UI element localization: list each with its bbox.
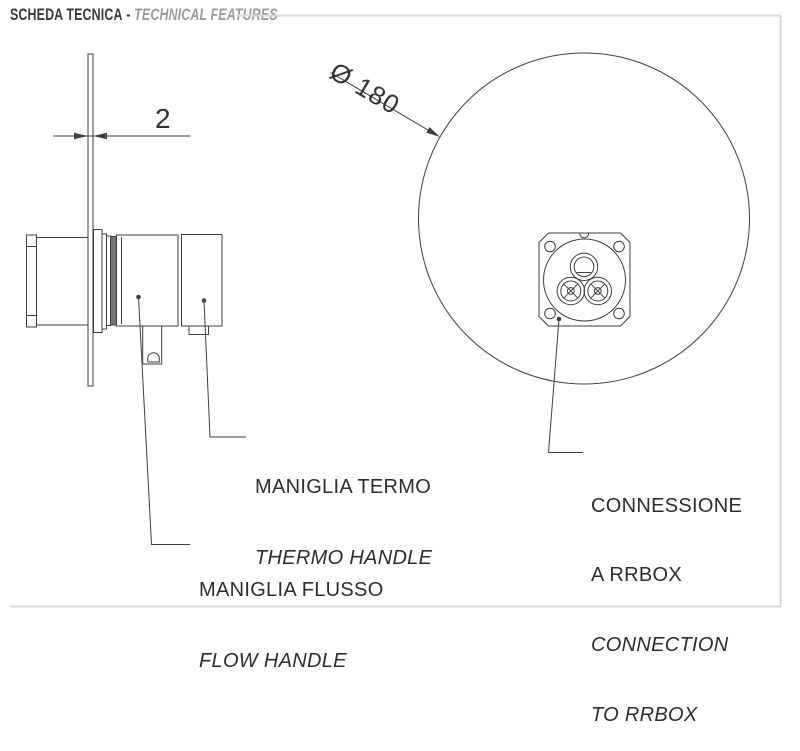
valve-body (37, 238, 89, 326)
rrbox-connection (539, 233, 630, 326)
corner-hole-top-left (545, 241, 556, 252)
thermo-handle-body (182, 235, 223, 327)
rrbox-label-it-line1: CONNESSIONE (591, 495, 742, 518)
dimension-arrow-left (74, 133, 88, 140)
leader-line (549, 319, 584, 453)
port-bottom-right (584, 277, 611, 304)
flow-lever-tip (148, 353, 160, 362)
port-bottom-left (557, 277, 584, 304)
leader-arrow (426, 127, 440, 137)
wall-plate (88, 54, 93, 386)
port-inner (574, 257, 594, 277)
port-top (570, 253, 597, 280)
plate-thickness-value: 2 (155, 103, 171, 135)
flow-handle-body (117, 235, 179, 326)
round-plate (419, 53, 750, 384)
rrbox-plate (539, 233, 630, 326)
side-view (27, 54, 247, 545)
gasket-ring (111, 237, 117, 326)
callout-flow-handle: MANIGLIA FLUSSO FLOW HANDLE (199, 532, 384, 697)
dimension-arrow-right (93, 133, 107, 140)
corner-hole-bottom-right (614, 308, 625, 319)
top-notch (580, 234, 589, 238)
flow-handle-label-en: FLOW HANDLE (199, 650, 384, 674)
flow-handle-label-it: MANIGLIA FLUSSO (199, 579, 384, 603)
leader-line (139, 297, 191, 545)
rrbox-label-en-line2: TO RRBOX (591, 704, 742, 727)
escutcheon-flange (94, 230, 103, 333)
inlet-cap (27, 235, 37, 327)
rrbox-leader (549, 317, 584, 453)
thermo-handle-leader (202, 298, 246, 437)
rrbox-label-it-line2: A RRBOX (591, 564, 742, 587)
spacer-ring (107, 236, 111, 326)
rrbox-label-en-line1: CONNECTION (591, 634, 742, 657)
leader-line (204, 301, 246, 438)
callout-rrbox: CONNESSIONE A RRBOX CONNECTION TO RRBOX (591, 448, 742, 751)
thermo-handle-label-it: MANIGLIA TERMO (255, 476, 432, 500)
corner-hole-bottom-left (545, 308, 556, 319)
escutcheon-step (102, 234, 107, 329)
flow-handle-leader (136, 295, 190, 545)
corner-hole-top-right (614, 241, 625, 252)
